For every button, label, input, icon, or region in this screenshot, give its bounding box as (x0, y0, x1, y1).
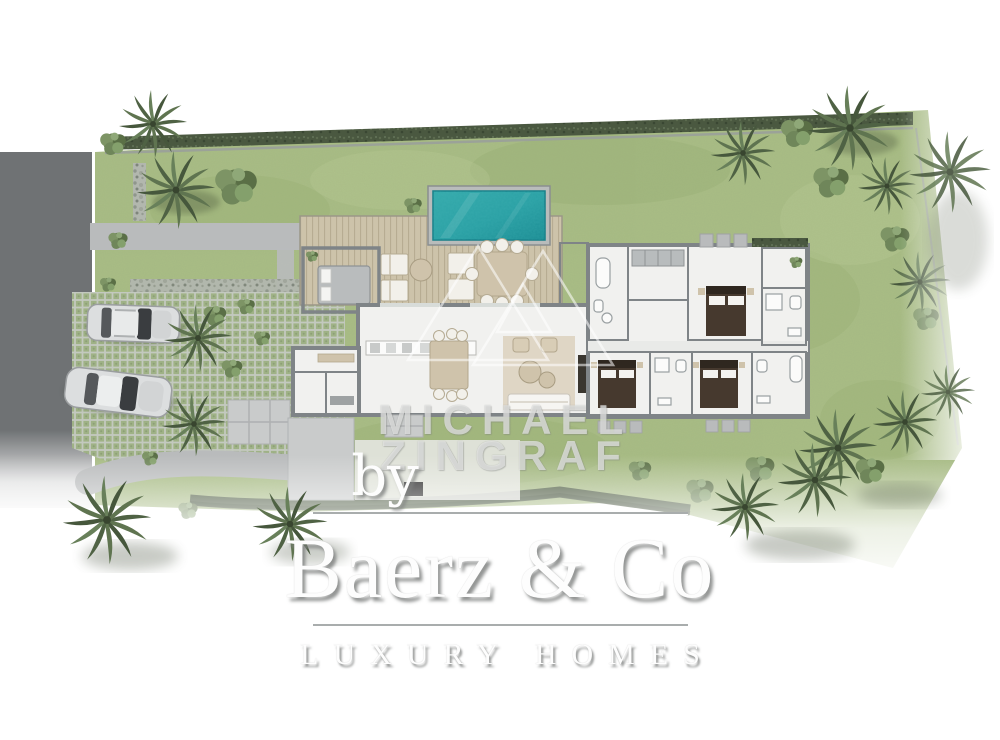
swimming-pool (428, 186, 550, 245)
logo-name: Baerz & Co (250, 518, 750, 618)
site-plan-image: MICHAEL ZINGRAF by Baerz & Co LUXURY HOM… (0, 0, 1000, 740)
logo-divider-bottom (313, 624, 688, 626)
double-bed (693, 360, 745, 408)
by-label: by (330, 444, 440, 509)
logo-block: Baerz & Co LUXURY HOMES (250, 512, 750, 672)
logo-divider-top (313, 512, 688, 514)
double-bed (698, 286, 754, 336)
logo-tagline: LUXURY HOMES (250, 638, 750, 672)
